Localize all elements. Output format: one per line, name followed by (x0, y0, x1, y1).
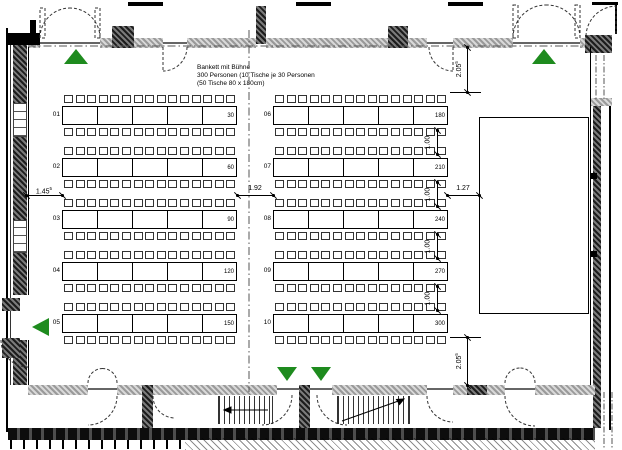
chair (180, 95, 189, 103)
chair (64, 284, 73, 292)
chair (122, 147, 131, 155)
right-wall-mark (591, 173, 597, 179)
chair (76, 303, 85, 311)
chair (275, 95, 284, 103)
chair (345, 147, 354, 155)
chair (180, 199, 189, 207)
chair (180, 303, 189, 311)
chair (76, 128, 85, 136)
chair (110, 336, 119, 344)
wall-pier (256, 6, 266, 44)
chair (64, 232, 73, 240)
chair (134, 128, 143, 136)
left-door-jamb (2, 338, 20, 358)
chair (180, 128, 189, 136)
dim-left_gap: 1.455 (24, 184, 64, 193)
top-wall (408, 38, 427, 48)
chair (275, 284, 284, 292)
chair (110, 199, 119, 207)
chair (356, 95, 365, 103)
chair (403, 336, 412, 344)
right-door-axis (596, 55, 604, 100)
chair (403, 251, 412, 259)
dim-top-offset: 2.055 (445, 56, 471, 84)
chair (310, 128, 319, 136)
chair (437, 95, 446, 103)
room-inner-face-left (28, 47, 29, 295)
chair (391, 251, 400, 259)
chair (298, 147, 307, 155)
chair (345, 303, 354, 311)
chair (368, 251, 377, 259)
chair (333, 303, 342, 311)
chair (368, 95, 377, 103)
left-wall-pier (13, 137, 27, 220)
staircase-left (218, 396, 273, 424)
chair (145, 180, 154, 188)
row-label-02: 02 (42, 163, 60, 171)
annotation-line-1: Bankett mit Bühne (197, 64, 315, 72)
chair (168, 199, 177, 207)
chair (391, 303, 400, 311)
left-wall-pier (13, 45, 27, 103)
chair (145, 199, 154, 207)
chair (215, 336, 224, 344)
chair (134, 95, 143, 103)
row-label-04: 04 (42, 267, 60, 275)
chair (203, 284, 212, 292)
annotation-line-3: (50 Tische 80 x 180cm) (197, 80, 315, 88)
plan-annotation: Bankett mit Bühne 300 Personen (10 Tisch… (197, 64, 315, 88)
chair (391, 336, 400, 344)
chair (310, 251, 319, 259)
chair (203, 232, 212, 240)
chair (157, 232, 166, 240)
row-count-08: 240 (413, 216, 445, 224)
stage (479, 117, 589, 314)
chair (333, 180, 342, 188)
chair (99, 147, 108, 155)
chair (110, 95, 119, 103)
chair (298, 128, 307, 136)
chair (391, 232, 400, 240)
chair (356, 303, 365, 311)
dim-bottom-offset: 2.055 (445, 347, 471, 375)
chair (298, 251, 307, 259)
row-count-05: 150 (202, 320, 234, 328)
bottom-wall (117, 385, 142, 395)
chair (203, 128, 212, 136)
exit-top-right-icon (532, 49, 556, 64)
right-wall (593, 106, 601, 428)
chair (298, 199, 307, 207)
chair (122, 95, 131, 103)
chair (226, 199, 235, 207)
chair (379, 251, 388, 259)
chair (168, 232, 177, 240)
chair (192, 303, 201, 311)
chair (345, 95, 354, 103)
door-threshold (277, 388, 299, 390)
chair (368, 128, 377, 136)
chair (379, 147, 388, 155)
chair (287, 180, 296, 188)
chair (157, 284, 166, 292)
chair (298, 180, 307, 188)
chair (379, 128, 388, 136)
chair (391, 284, 400, 292)
chair (391, 128, 400, 136)
chair (145, 95, 154, 103)
chair (403, 303, 412, 311)
chair (321, 180, 330, 188)
chair (368, 303, 377, 311)
chair (321, 251, 330, 259)
chair (391, 199, 400, 207)
exit-bottom-1-icon (277, 367, 297, 381)
right-wall-mark (591, 251, 597, 257)
chair (203, 336, 212, 344)
chair (110, 303, 119, 311)
chair (287, 95, 296, 103)
chair (437, 336, 446, 344)
chair (368, 180, 377, 188)
chair (226, 95, 235, 103)
chair (275, 199, 284, 207)
chair (99, 232, 108, 240)
chair (379, 336, 388, 344)
chair (203, 180, 212, 188)
left-wall-window (13, 220, 27, 253)
top-wall (453, 38, 513, 48)
chair (226, 147, 235, 155)
chair (345, 232, 354, 240)
chair (87, 284, 96, 292)
bottom-wall (332, 385, 427, 395)
chair (356, 232, 365, 240)
chair (226, 284, 235, 292)
chair (203, 303, 212, 311)
chair (275, 232, 284, 240)
chair (192, 284, 201, 292)
corner-wall (8, 33, 40, 45)
left-wall-pier (13, 253, 27, 295)
chair (310, 303, 319, 311)
chair (110, 128, 119, 136)
chair (426, 336, 435, 344)
dim-row-gap-1: 1.00 (415, 128, 441, 156)
bottom-wall (153, 385, 277, 395)
chair (64, 180, 73, 188)
chair (298, 232, 307, 240)
chair (275, 147, 284, 155)
chair (180, 251, 189, 259)
chair (333, 199, 342, 207)
dim-dot (61, 194, 64, 197)
facade-segment (448, 2, 483, 6)
chair (203, 251, 212, 259)
chair (379, 303, 388, 311)
facade-segment (296, 2, 331, 6)
chair (76, 95, 85, 103)
row-count-09: 270 (413, 268, 445, 276)
chair (310, 199, 319, 207)
chair (145, 336, 154, 344)
chair (414, 95, 423, 103)
dim-bottom-offset-label: 2.055 (452, 353, 464, 369)
dim-center_gap-line (237, 195, 273, 196)
chair (76, 251, 85, 259)
dim-dot (466, 384, 469, 387)
double-door-bottom-left (88, 369, 117, 384)
exit-bottom-2-icon (311, 367, 331, 381)
chair (226, 303, 235, 311)
corner-wall (30, 20, 36, 33)
row-label-01: 01 (42, 111, 60, 119)
top-wall (100, 38, 112, 48)
chair (321, 128, 330, 136)
chair (134, 180, 143, 188)
chair (122, 284, 131, 292)
chair (87, 336, 96, 344)
chair (76, 199, 85, 207)
right-door-sill (590, 98, 612, 106)
chair (134, 232, 143, 240)
left-outer-wall (6, 28, 8, 432)
bottom-wall (28, 385, 88, 395)
chair (87, 251, 96, 259)
chair (298, 284, 307, 292)
chair (87, 199, 96, 207)
dim-dot (478, 194, 481, 197)
chair (180, 336, 189, 344)
double-door-top-right (513, 5, 580, 38)
dim-left_gap-line (26, 195, 62, 196)
chair (403, 128, 412, 136)
chair (203, 147, 212, 155)
chair (215, 180, 224, 188)
top-wall (266, 38, 388, 48)
door-threshold (163, 42, 187, 44)
chair (122, 251, 131, 259)
chair (64, 147, 73, 155)
top-wall (187, 38, 256, 48)
exit-left-icon (32, 318, 49, 336)
row-label-09: 09 (253, 267, 271, 275)
chair (87, 303, 96, 311)
door-threshold (505, 388, 535, 390)
chair (192, 147, 201, 155)
room-inner-face-right (590, 47, 591, 385)
dim-row-gap-3-label: 1.00 (424, 239, 433, 253)
door-threshold (40, 42, 100, 44)
row-count-04: 120 (202, 268, 234, 276)
exterior-colonnade (10, 440, 185, 449)
chair (192, 251, 201, 259)
door-threshold (513, 42, 580, 44)
chair (145, 251, 154, 259)
chair (122, 232, 131, 240)
chair (310, 147, 319, 155)
chair (192, 128, 201, 136)
left-outer-wall (10, 45, 11, 385)
chair (368, 147, 377, 155)
double-door-bottom-right (505, 368, 535, 383)
chair (168, 284, 177, 292)
row-count-03: 90 (202, 216, 234, 224)
chair (157, 180, 166, 188)
chair (379, 95, 388, 103)
chair (310, 180, 319, 188)
chair (215, 284, 224, 292)
chair (226, 128, 235, 136)
chair (403, 199, 412, 207)
chair (192, 95, 201, 103)
chair (321, 199, 330, 207)
chair (87, 95, 96, 103)
chair (287, 251, 296, 259)
chair (275, 251, 284, 259)
dim-dot (236, 194, 239, 197)
chair (368, 336, 377, 344)
chair (134, 303, 143, 311)
chair (134, 199, 143, 207)
chair (192, 336, 201, 344)
chair (298, 303, 307, 311)
row-label-03: 03 (42, 215, 60, 223)
chair (99, 199, 108, 207)
chair (110, 232, 119, 240)
chair (298, 95, 307, 103)
row-count-10: 300 (413, 320, 445, 328)
chair (414, 336, 423, 344)
chair (379, 232, 388, 240)
chair (99, 284, 108, 292)
chair (215, 147, 224, 155)
chair (76, 284, 85, 292)
chair (145, 232, 154, 240)
row-count-01: 30 (202, 112, 234, 120)
chair (99, 95, 108, 103)
chair (403, 284, 412, 292)
chair (333, 147, 342, 155)
chair (76, 180, 85, 188)
chair (157, 303, 166, 311)
chair (310, 284, 319, 292)
facade-segment (128, 2, 163, 6)
dim-dot (25, 194, 28, 197)
chair (203, 95, 212, 103)
chair (403, 180, 412, 188)
chair (180, 147, 189, 155)
staircase-right (337, 396, 410, 424)
dim-row-gap-3: 1.00 (415, 232, 441, 260)
chair (76, 147, 85, 155)
chair (215, 199, 224, 207)
chair (168, 180, 177, 188)
chair (275, 336, 284, 344)
chair (99, 180, 108, 188)
chair (122, 199, 131, 207)
chair (356, 336, 365, 344)
chair (145, 128, 154, 136)
chair (99, 251, 108, 259)
chair (287, 303, 296, 311)
chair (64, 336, 73, 344)
chair (345, 251, 354, 259)
chair (99, 128, 108, 136)
exterior-hatch (185, 438, 595, 450)
chair (168, 147, 177, 155)
chair (64, 95, 73, 103)
chair (368, 199, 377, 207)
bottom-wall (487, 385, 505, 395)
chair (333, 232, 342, 240)
chair (403, 147, 412, 155)
chair (321, 147, 330, 155)
chair (321, 303, 330, 311)
chair (64, 128, 73, 136)
chair (345, 336, 354, 344)
chair (333, 251, 342, 259)
chair (64, 303, 73, 311)
chair (215, 251, 224, 259)
chair (157, 251, 166, 259)
chair (275, 303, 284, 311)
door-threshold (427, 388, 453, 390)
chair (345, 284, 354, 292)
chair (356, 199, 365, 207)
chair (145, 284, 154, 292)
chair (356, 284, 365, 292)
chair (122, 128, 131, 136)
wall-pier (299, 385, 310, 428)
bottom-wall (535, 385, 595, 395)
chair (99, 336, 108, 344)
chair (168, 95, 177, 103)
chair (192, 180, 201, 188)
facade-segment (615, 2, 617, 34)
chair (379, 180, 388, 188)
chair (145, 303, 154, 311)
wall-pier (142, 385, 153, 428)
chair (215, 232, 224, 240)
chair (345, 128, 354, 136)
bottom-wall (453, 385, 467, 395)
double-door-top-left (40, 8, 100, 38)
chair (110, 251, 119, 259)
door-threshold (88, 388, 117, 390)
dim-row-gap-1-label: 1.00 (424, 135, 433, 149)
chair (321, 336, 330, 344)
chair (275, 128, 284, 136)
chair (134, 284, 143, 292)
chair (333, 95, 342, 103)
chair (391, 95, 400, 103)
dim-row-gap-2-label: 1.00 (424, 187, 433, 201)
room-inner-face-left (28, 340, 29, 385)
chair (391, 180, 400, 188)
dim-ext-line (450, 92, 481, 93)
chair (310, 95, 319, 103)
chair (226, 336, 235, 344)
chair (287, 336, 296, 344)
row-count-07: 210 (413, 164, 445, 172)
annotation-line-2: 300 Personen (10 Tische je 30 Personen (197, 72, 315, 80)
chair (76, 232, 85, 240)
chair (99, 303, 108, 311)
exit-top-left-icon (64, 49, 88, 64)
